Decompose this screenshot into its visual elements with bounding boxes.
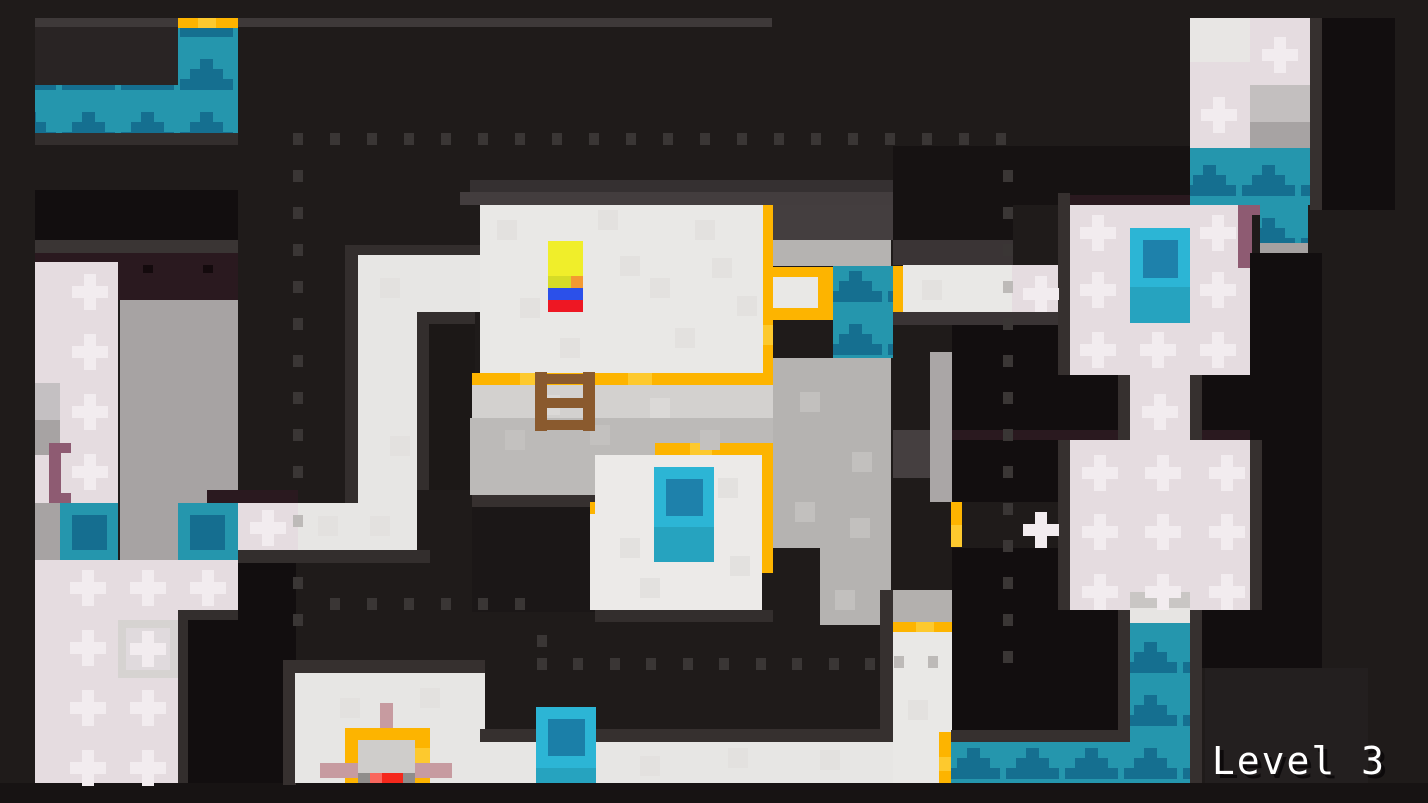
boundary-dot <box>1003 577 1013 589</box>
boundary-dot <box>293 355 303 367</box>
boundary-dot <box>367 133 377 145</box>
water-strip-topleft-pattern <box>35 85 178 133</box>
floor-speckle <box>640 756 660 776</box>
yellow-notch-top <box>773 267 818 277</box>
gray-strip-right <box>930 352 952 502</box>
floor-speckle <box>640 578 660 598</box>
boundary-dot <box>537 635 547 647</box>
yellow-water-right <box>893 266 903 312</box>
boundary-dot <box>1003 207 1013 219</box>
robot-mouth-light <box>370 773 382 783</box>
top-line <box>35 18 772 27</box>
door-bottom-center[interactable] <box>536 707 596 783</box>
black-room2-border <box>178 610 188 783</box>
vcorridor-border-left <box>880 590 893 742</box>
floor-speckle <box>380 278 400 298</box>
door-right-room[interactable] <box>1130 228 1190 323</box>
rcorridor-white <box>903 265 1012 312</box>
yellow-tealroom-right <box>762 443 773 573</box>
boundary-dot <box>573 658 583 670</box>
boundary-dot <box>293 577 303 589</box>
boundary-dot <box>1003 170 1013 182</box>
player-pants <box>548 300 583 312</box>
water-cap-yellow-light <box>198 18 216 28</box>
floor-speckle <box>497 220 517 240</box>
corridor2-border <box>238 550 430 563</box>
boundary-dot <box>293 244 303 256</box>
boundary-dot <box>865 658 875 670</box>
water-topright-pattern <box>1190 148 1310 205</box>
floor-speckle <box>712 258 732 278</box>
floor-speckle <box>390 436 410 456</box>
boundary-dot <box>293 392 303 404</box>
left-room-wallstrip <box>35 240 238 253</box>
floor-speckle <box>700 430 720 450</box>
left-gray-column <box>120 300 238 503</box>
mainroom-white <box>480 205 763 373</box>
tr-tile <box>1190 18 1250 62</box>
floor-speckle <box>908 700 928 720</box>
yellow-rcorridor <box>951 502 962 525</box>
door-window <box>1143 240 1178 278</box>
level-indicator: Level 3 <box>1212 739 1386 783</box>
door-window <box>666 479 703 516</box>
boundary-dot <box>1003 503 1013 515</box>
boundary-dot <box>1003 318 1013 330</box>
yellow-right-border-light <box>763 325 773 345</box>
yellow-river-light <box>939 757 951 771</box>
boundary-dot <box>811 133 821 145</box>
floor-speckle <box>730 556 750 576</box>
game-canvas[interactable] <box>0 0 1428 803</box>
yellow-right-border <box>763 205 773 373</box>
boundary-dot <box>1003 614 1013 626</box>
boundary-dot <box>441 133 451 145</box>
floor-speckle <box>922 280 942 300</box>
door-bottom <box>536 768 596 783</box>
rroom1-border-left <box>1058 193 1070 375</box>
purple-pipe <box>1238 205 1260 215</box>
indent-maroon <box>1202 430 1250 440</box>
boundary-dot <box>293 429 303 441</box>
boundary-dot <box>646 658 656 670</box>
door-center[interactable] <box>654 467 714 562</box>
boundary-dot <box>293 614 303 626</box>
left-room-maroon-block <box>118 262 238 300</box>
waterfall-border <box>1190 610 1202 783</box>
blackzone-border <box>472 495 595 507</box>
shaft-border-left <box>345 245 358 503</box>
robot-foot <box>358 773 370 783</box>
waterfall-cap2 <box>1130 608 1190 623</box>
floor-speckle <box>340 698 360 718</box>
boundary-dot <box>774 133 784 145</box>
vcorridor-white <box>893 732 939 783</box>
mainroom-band1 <box>470 180 895 192</box>
purple-pipe <box>49 493 71 503</box>
bindent-black <box>1202 610 1322 668</box>
left-patch-light <box>35 383 60 420</box>
black-region <box>1322 18 1395 210</box>
boundary-dot <box>756 658 766 670</box>
bottom-edge <box>0 783 1428 803</box>
door-left-west[interactable] <box>60 503 118 560</box>
boundary-dot <box>293 466 303 478</box>
inset-black <box>429 324 475 490</box>
robot-arm-left <box>320 763 358 778</box>
black-region <box>893 146 1013 240</box>
floor-speckle <box>620 256 640 276</box>
door-bottom <box>654 527 714 562</box>
boundary-dot <box>552 133 562 145</box>
boundary-dot <box>1003 466 1013 478</box>
floor-speckle <box>520 298 540 318</box>
mainroom-band3 <box>773 205 893 240</box>
yellow-rcorridor-light <box>951 525 962 547</box>
corridor2-maroon <box>207 490 298 503</box>
floor-speckle <box>675 328 695 348</box>
boundary-dot <box>404 133 414 145</box>
boundary-dot <box>293 318 303 330</box>
player-chin <box>548 276 571 288</box>
boundary-dot <box>885 133 895 145</box>
door-window <box>72 515 107 550</box>
tr-graystrip <box>1260 243 1308 253</box>
topleft-wall <box>35 27 178 85</box>
door-left-east[interactable] <box>178 503 238 560</box>
floor-speckle <box>800 392 820 412</box>
boundary-dot <box>293 281 303 293</box>
robot-foot <box>403 773 415 783</box>
floor-speckle <box>728 748 748 768</box>
boundary-dot <box>441 598 451 610</box>
boundary-dot <box>792 658 802 670</box>
topleft-underline <box>35 133 238 145</box>
purple-pipe <box>1238 215 1252 268</box>
floor-speckle <box>695 220 715 240</box>
boundary-dot-light <box>1003 281 1013 293</box>
indent-black <box>1202 375 1250 432</box>
river-border <box>951 730 1118 742</box>
boundary-dot <box>330 133 340 145</box>
boundary-dot <box>537 658 547 670</box>
indent-border <box>1190 375 1202 440</box>
boundary-dot <box>589 133 599 145</box>
boundary-dot <box>1003 244 1013 256</box>
boundary-dot <box>293 170 303 182</box>
mainroom-band2 <box>460 192 905 205</box>
left-room-black <box>35 190 238 240</box>
left-gray-mid <box>120 503 178 560</box>
floor-speckle <box>650 278 670 298</box>
plaza-gray-top <box>773 240 891 266</box>
boundary-dot <box>367 598 377 610</box>
ladder-rung <box>535 420 595 430</box>
floor-speckle <box>737 296 757 316</box>
floor-speckle <box>820 750 840 770</box>
waterfall-center-pattern <box>833 266 893 358</box>
boundary-dot <box>1003 540 1013 552</box>
floor-speckle <box>420 688 440 708</box>
boundary-dot-light <box>293 515 303 527</box>
inset-border <box>417 312 429 490</box>
tr-tile <box>1250 85 1310 122</box>
floor-speckle <box>850 518 870 538</box>
boundary-dot <box>404 598 414 610</box>
tr-border-right <box>1310 18 1322 210</box>
floor-speckle <box>560 338 580 358</box>
boundary-dot <box>626 133 636 145</box>
door-bottom <box>1130 287 1190 323</box>
tr-tile <box>1250 122 1310 148</box>
door-window <box>548 719 585 756</box>
boundary-dot <box>330 598 340 610</box>
floor-speckle <box>718 478 738 498</box>
plaza-gray <box>773 358 891 548</box>
boundary-dot-light <box>928 656 938 668</box>
floor-speckle <box>598 210 618 230</box>
rroom2-border-right <box>1250 440 1262 610</box>
water-column-topleft-pattern <box>178 28 238 133</box>
robot-mouth <box>382 773 403 783</box>
boundary-dot <box>700 133 710 145</box>
robotroom-border <box>283 660 485 673</box>
player-cheek <box>571 276 583 288</box>
player-character[interactable] <box>548 241 583 312</box>
boundary-dot <box>959 133 969 145</box>
boundary-dot <box>478 598 488 610</box>
yellow-notch-side <box>818 267 833 320</box>
corridor2-white <box>298 503 417 550</box>
boundary-dot <box>1003 651 1013 663</box>
purple-pipe <box>49 453 61 493</box>
boundary-dot <box>683 658 693 670</box>
notch-white <box>773 277 818 308</box>
floor-speckle <box>650 398 670 418</box>
left-room-maroon <box>35 253 238 262</box>
ladder-rung <box>535 374 595 384</box>
game-viewport[interactable]: Level 3 <box>0 0 1428 803</box>
floor-speckle <box>835 590 855 610</box>
boundary-dot <box>1003 392 1013 404</box>
boundary-dot <box>1003 429 1013 441</box>
rcorridor-wall-bottom <box>893 312 1070 325</box>
black-room2 <box>188 620 238 783</box>
floor-speckle <box>852 452 872 472</box>
boundary-dot <box>848 133 858 145</box>
tealroom-border-bottom <box>595 610 773 622</box>
player-shirt <box>548 288 583 300</box>
boundary-dot-light <box>894 656 904 668</box>
yellow-bottom-border <box>472 373 773 385</box>
floor-lightgray <box>472 385 773 418</box>
boundary-dot <box>478 133 488 145</box>
black-region <box>1262 440 1322 610</box>
water-square-right-pattern <box>1260 205 1308 243</box>
black-region <box>1250 253 1322 440</box>
ladder-rung <box>535 398 595 408</box>
yellow-bottom-border-light <box>628 373 652 385</box>
robot-arm-right <box>415 763 452 778</box>
door-window <box>190 515 225 550</box>
boundary-dot <box>663 133 673 145</box>
left-room-eye <box>203 265 213 273</box>
river-bottom-pattern <box>951 742 1190 783</box>
robotroom-border <box>283 660 296 785</box>
boundary-dot <box>996 133 1006 145</box>
floor-speckle <box>318 516 338 536</box>
boundary-dot <box>515 133 525 145</box>
indent-border <box>1118 375 1130 440</box>
left-room-eye <box>143 265 153 273</box>
floor-speckle <box>505 430 525 450</box>
yellow-vcorridor-light <box>916 622 934 632</box>
yellow-notch-bottom <box>773 308 818 320</box>
indent-maroon <box>1070 430 1118 440</box>
rcorridor-wall-top <box>893 240 1013 265</box>
boundary-dot <box>829 658 839 670</box>
boundary-dot <box>737 133 747 145</box>
floor-speckle <box>620 538 640 558</box>
boundary-dot <box>1003 355 1013 367</box>
boundary-dot <box>293 207 303 219</box>
ladder[interactable] <box>535 372 595 431</box>
blackzone <box>472 507 595 612</box>
purple-pipe <box>49 443 71 453</box>
vcorridor-gray <box>893 590 952 622</box>
rroom2-border-left <box>1058 440 1070 610</box>
floor-speckle <box>795 502 815 522</box>
floor-speckle <box>370 516 390 536</box>
boundary-dot <box>719 658 729 670</box>
bindent-black <box>1070 610 1118 668</box>
boundary-dot <box>515 598 525 610</box>
player-head <box>548 241 583 276</box>
boundary-dot <box>610 658 620 670</box>
indent-black <box>1070 375 1118 432</box>
boundary-dot <box>293 133 303 145</box>
boundary-dot <box>922 133 932 145</box>
